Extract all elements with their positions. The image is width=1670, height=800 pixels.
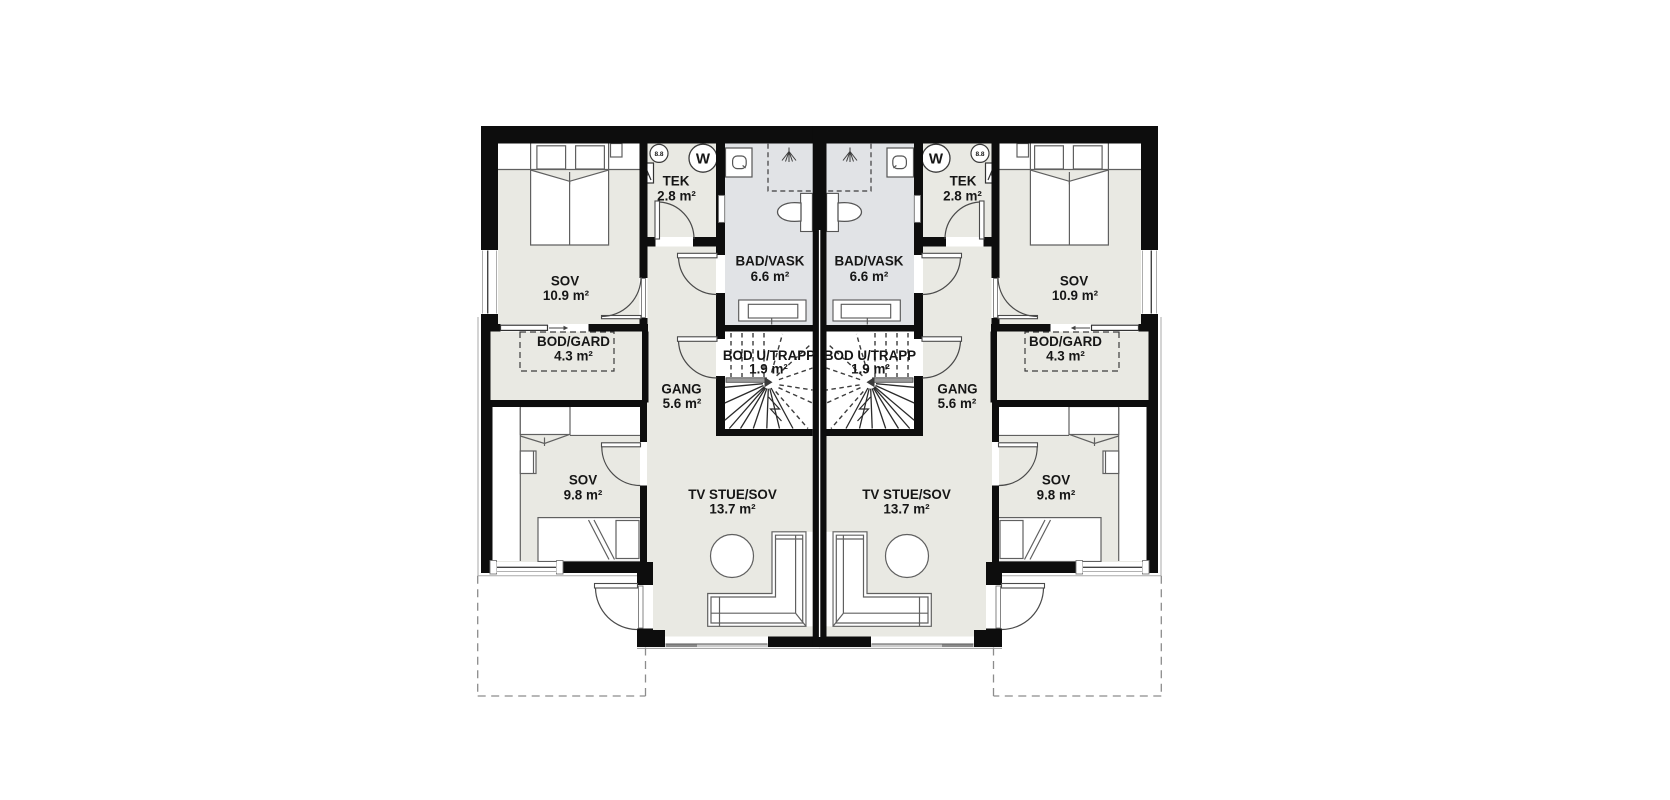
svg-text:9.8 m²: 9.8 m² [1037,488,1076,503]
svg-text:SOV: SOV [1042,473,1070,488]
svg-text:BAD/VASK: BAD/VASK [736,254,805,269]
svg-text:9.8 m²: 9.8 m² [564,488,603,503]
svg-text:5.6 m²: 5.6 m² [938,396,977,411]
svg-text:BAD/VASK: BAD/VASK [835,254,904,269]
svg-text:2.8 m²: 2.8 m² [943,189,982,204]
svg-text:SOV: SOV [569,473,597,488]
svg-text:W: W [929,151,944,168]
svg-text:TV STUE/SOV: TV STUE/SOV [688,487,777,502]
svg-text:10.9 m²: 10.9 m² [1052,288,1099,303]
svg-text:1.9 m²: 1.9 m² [851,362,890,377]
svg-text:BOD/GARD: BOD/GARD [537,334,610,349]
svg-text:4.3 m²: 4.3 m² [554,349,593,364]
svg-text:BOD/GARD: BOD/GARD [1029,334,1102,349]
svg-text:W: W [696,151,711,168]
svg-text:TEK: TEK [950,174,977,189]
svg-text:GANG: GANG [937,382,977,397]
svg-text:TEK: TEK [663,174,690,189]
svg-text:13.7 m²: 13.7 m² [709,502,756,517]
svg-text:TV STUE/SOV: TV STUE/SOV [862,487,951,502]
svg-text:13.7 m²: 13.7 m² [883,502,930,517]
svg-text:SOV: SOV [1060,274,1088,289]
svg-text:8.8: 8.8 [975,151,984,158]
svg-text:6.6 m²: 6.6 m² [850,269,889,284]
svg-text:4.3 m²: 4.3 m² [1046,349,1085,364]
svg-text:SOV: SOV [551,274,579,289]
svg-text:GANG: GANG [661,382,701,397]
svg-text:1.9 m²: 1.9 m² [749,362,788,377]
svg-text:10.9 m²: 10.9 m² [543,288,590,303]
svg-text:8.8: 8.8 [654,151,663,158]
svg-text:2.8 m²: 2.8 m² [657,189,696,204]
svg-text:6.6 m²: 6.6 m² [751,269,790,284]
svg-text:5.6 m²: 5.6 m² [663,396,702,411]
